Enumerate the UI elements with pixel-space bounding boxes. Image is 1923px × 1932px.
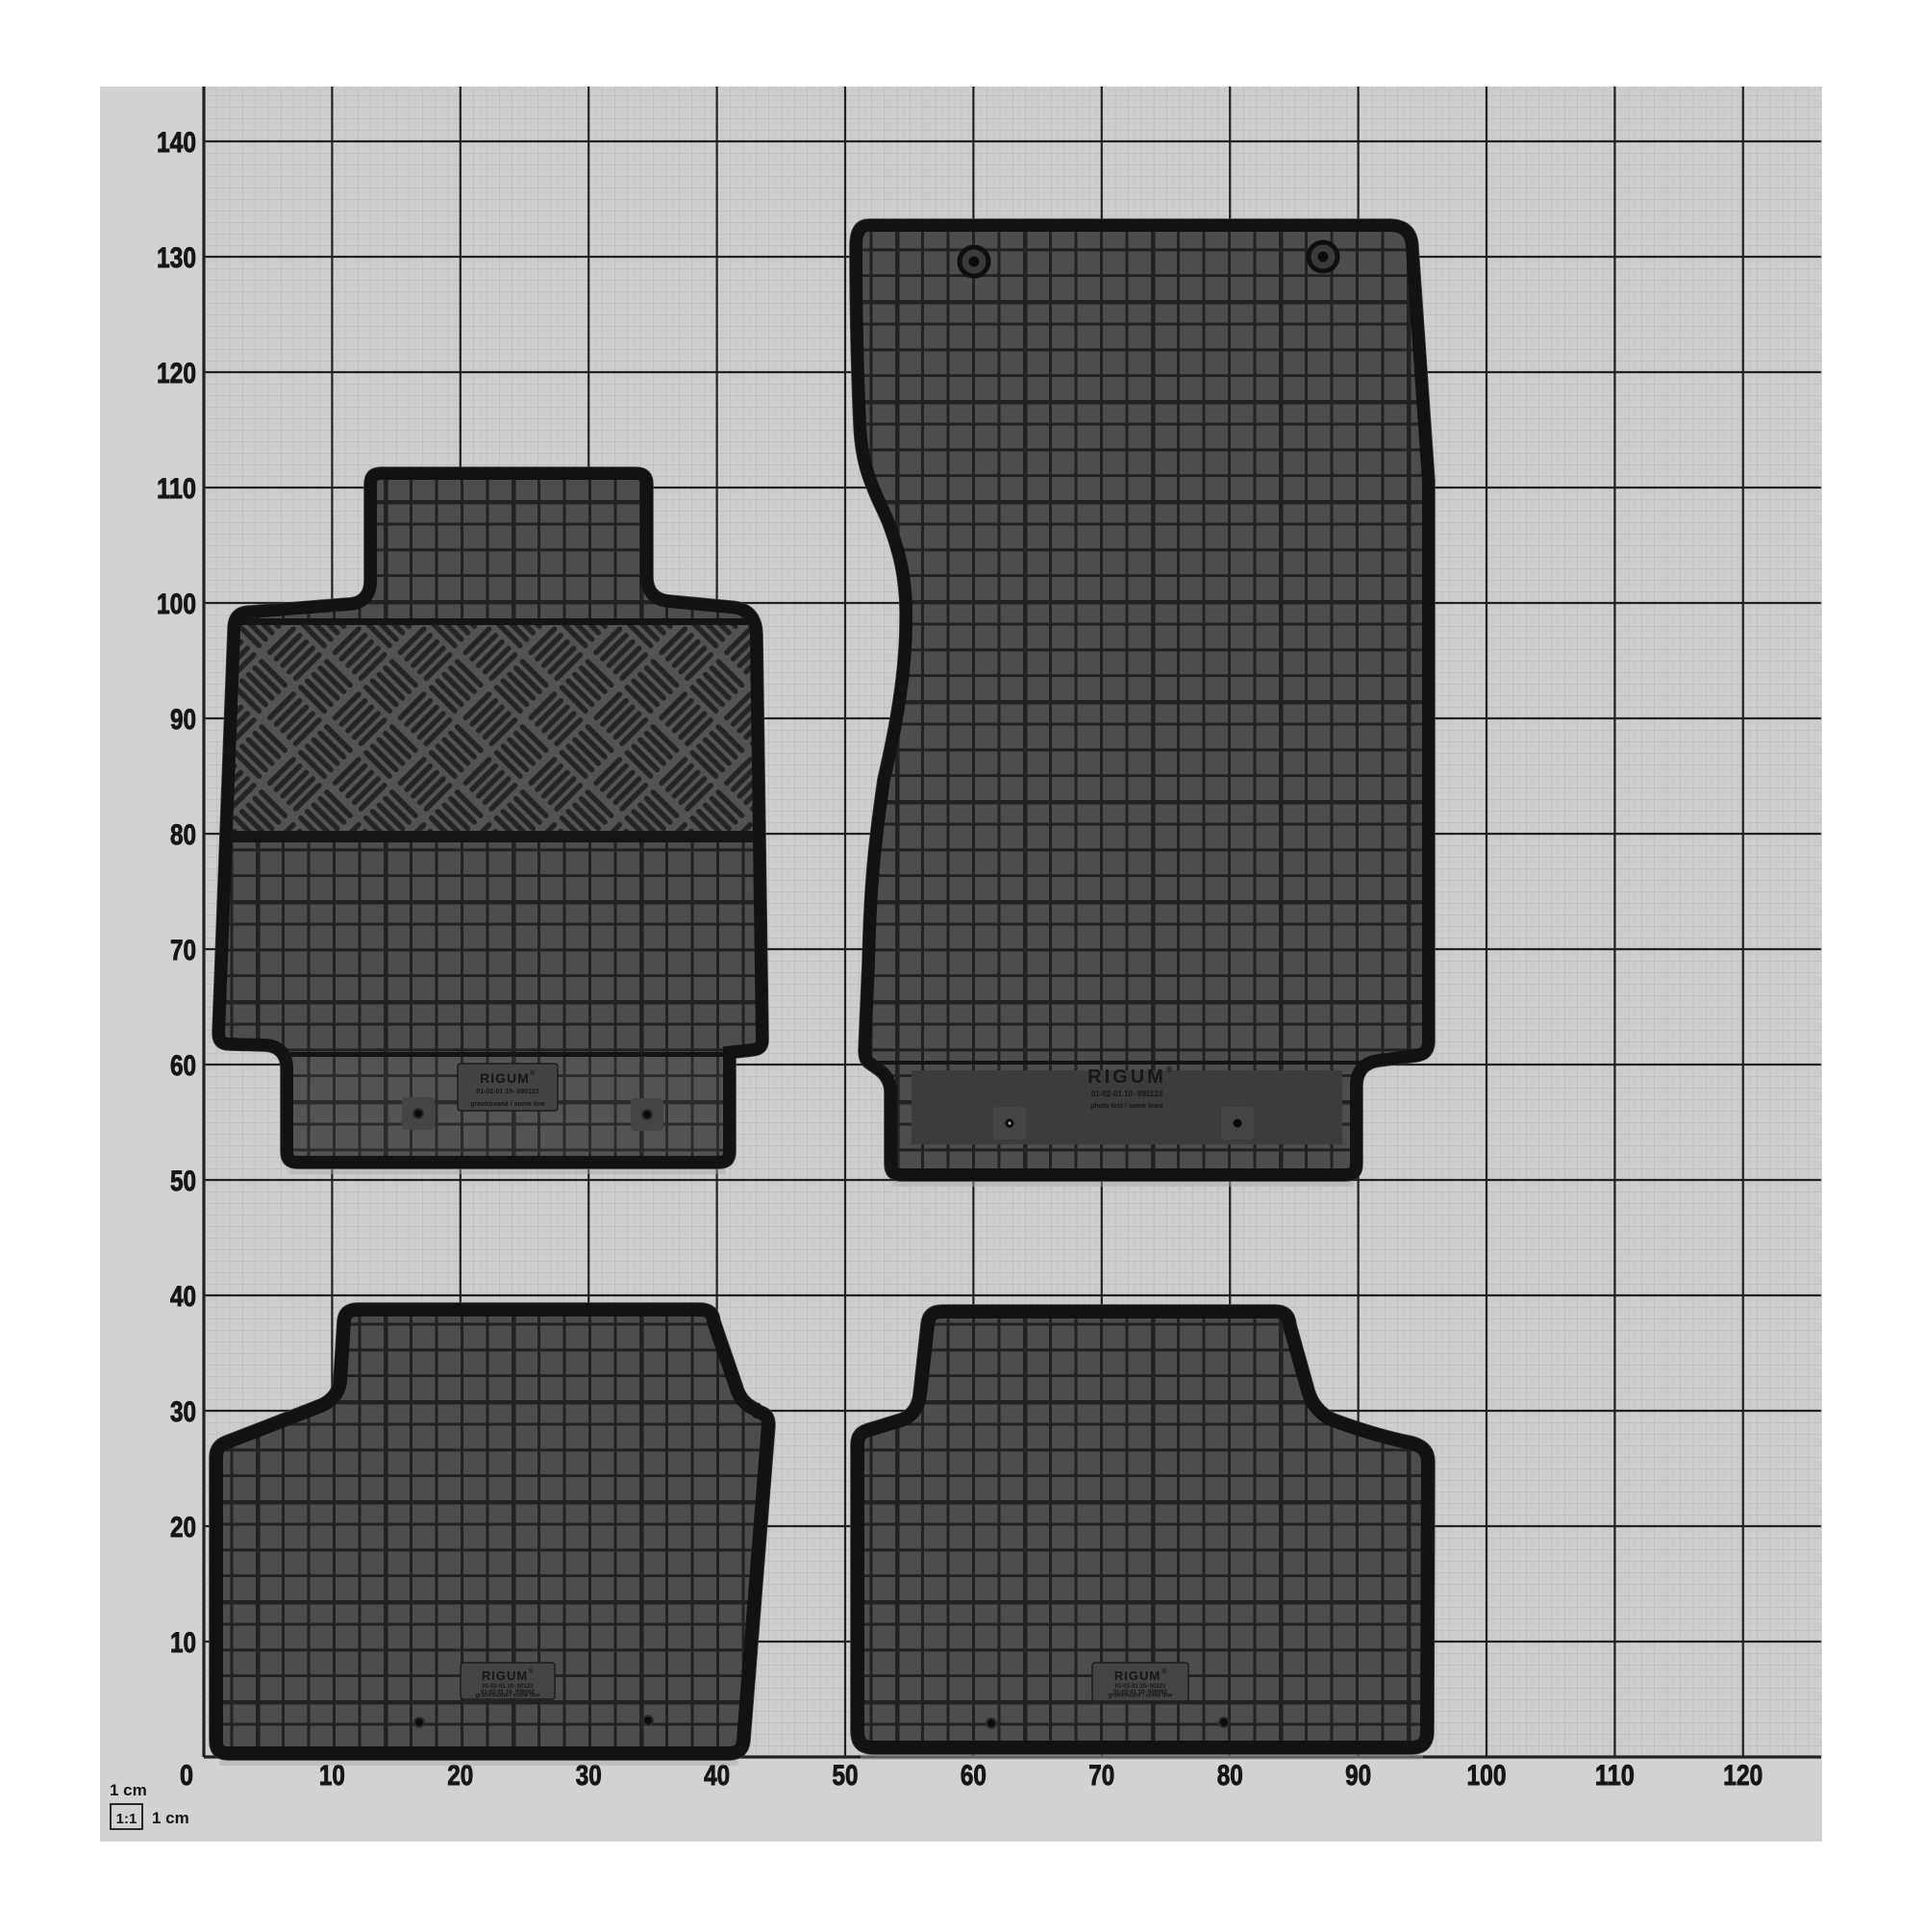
svg-text:60: 60 [170, 1050, 196, 1082]
svg-text:20: 20 [170, 1512, 196, 1543]
svg-text:®: ® [1161, 1668, 1167, 1675]
svg-text:50: 50 [170, 1166, 196, 1197]
svg-text:®: ® [1166, 1065, 1173, 1074]
svg-text:gravírované / some line: gravírované / some line [1109, 1694, 1173, 1699]
svg-text:130: 130 [157, 242, 196, 274]
svg-text:120: 120 [157, 358, 196, 389]
svg-text:40: 40 [170, 1281, 196, 1313]
svg-text:110: 110 [1595, 1760, 1635, 1792]
svg-text:RIGUM: RIGUM [1087, 1066, 1166, 1088]
svg-text:RIGUM: RIGUM [1114, 1669, 1161, 1683]
svg-text:RIGUM: RIGUM [482, 1669, 528, 1683]
svg-text:70: 70 [170, 935, 196, 966]
svg-text:®: ® [528, 1668, 534, 1675]
svg-text:100: 100 [157, 589, 196, 620]
svg-text:gravírované / some line: gravírované / some line [476, 1694, 540, 1699]
svg-text:1:1: 1:1 [116, 1811, 137, 1827]
svg-text:0: 0 [180, 1760, 193, 1792]
svg-text:gravírované / some line: gravírované / some line [470, 1101, 545, 1108]
svg-text:01-02-01 10- 890123: 01-02-01 10- 890123 [476, 1089, 538, 1095]
svg-text:1 cm: 1 cm [152, 1809, 189, 1827]
svg-text:90: 90 [1345, 1760, 1371, 1792]
svg-text:70: 70 [1088, 1760, 1114, 1792]
svg-text:90: 90 [170, 704, 196, 736]
svg-text:110: 110 [157, 473, 196, 505]
svg-text:60: 60 [961, 1760, 986, 1792]
svg-text:140: 140 [157, 127, 196, 159]
svg-text:120: 120 [1723, 1760, 1762, 1792]
svg-text:1 cm: 1 cm [110, 1781, 147, 1799]
svg-text:50: 50 [833, 1760, 859, 1792]
svg-text:100: 100 [1467, 1760, 1507, 1792]
svg-text:80: 80 [1217, 1760, 1243, 1792]
svg-text:01-02-01 10- 891123: 01-02-01 10- 891123 [1091, 1090, 1163, 1098]
svg-text:®: ® [530, 1069, 536, 1077]
svg-text:10: 10 [170, 1627, 196, 1659]
svg-text:80: 80 [170, 819, 196, 851]
svg-text:RIGUM: RIGUM [480, 1070, 530, 1086]
svg-text:photo text / some lines: photo text / some lines [1090, 1103, 1163, 1110]
svg-text:30: 30 [170, 1396, 196, 1428]
